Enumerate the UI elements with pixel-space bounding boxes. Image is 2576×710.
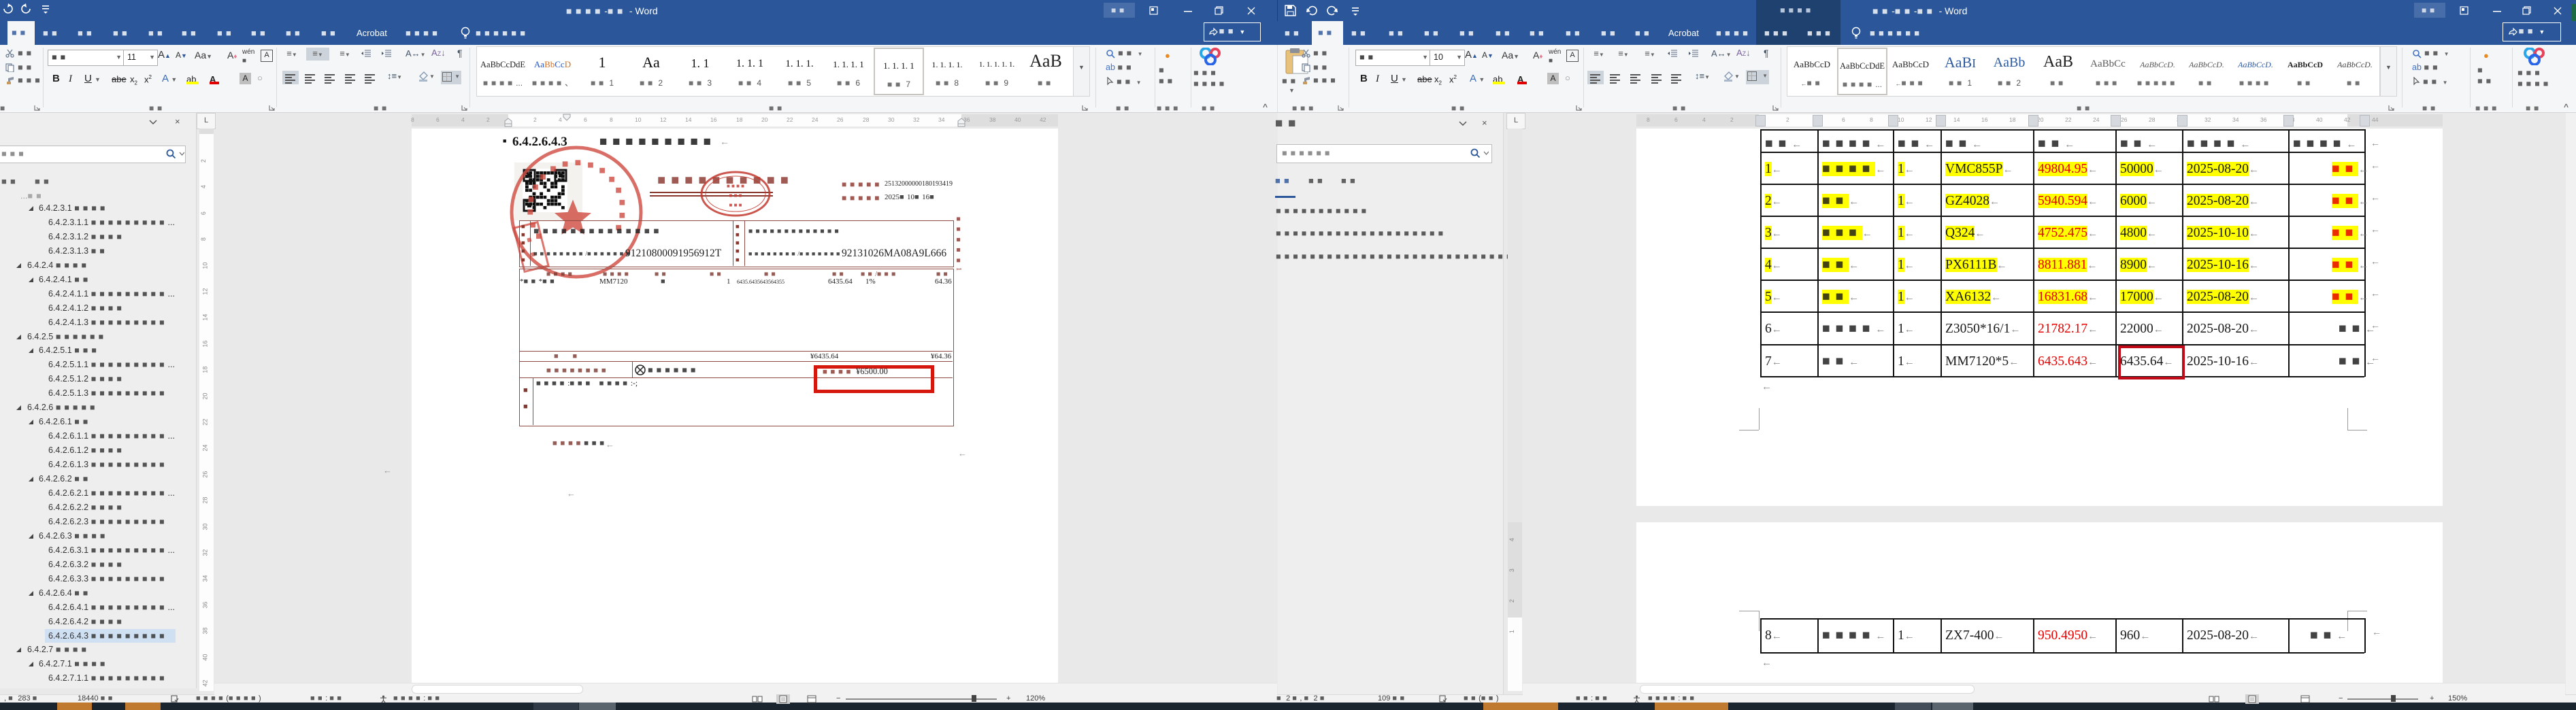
svg-text:■: ■ xyxy=(615,184,622,196)
svg-text:■: ■ xyxy=(540,171,546,183)
svg-text:■: ■ xyxy=(619,209,626,221)
svg-text:■: ■ xyxy=(550,163,557,175)
svg-text:■ ■ ■ ■: ■ ■ ■ ■ xyxy=(727,183,744,189)
svg-text:■: ■ xyxy=(575,157,582,169)
svg-text:■: ■ xyxy=(527,207,533,218)
svg-text:■ ■ ■: ■ ■ ■ xyxy=(729,202,742,208)
svg-text:■: ■ xyxy=(562,158,569,170)
svg-text:■: ■ xyxy=(619,197,626,209)
svg-text:■: ■ xyxy=(532,182,539,193)
svg-text:■: ■ xyxy=(599,165,606,177)
svg-text:■: ■ xyxy=(587,159,594,171)
svg-text:■ ■ ■: ■ ■ ■ xyxy=(729,192,742,199)
svg-text:■: ■ xyxy=(528,194,535,205)
svg-text:■: ■ xyxy=(608,173,615,185)
